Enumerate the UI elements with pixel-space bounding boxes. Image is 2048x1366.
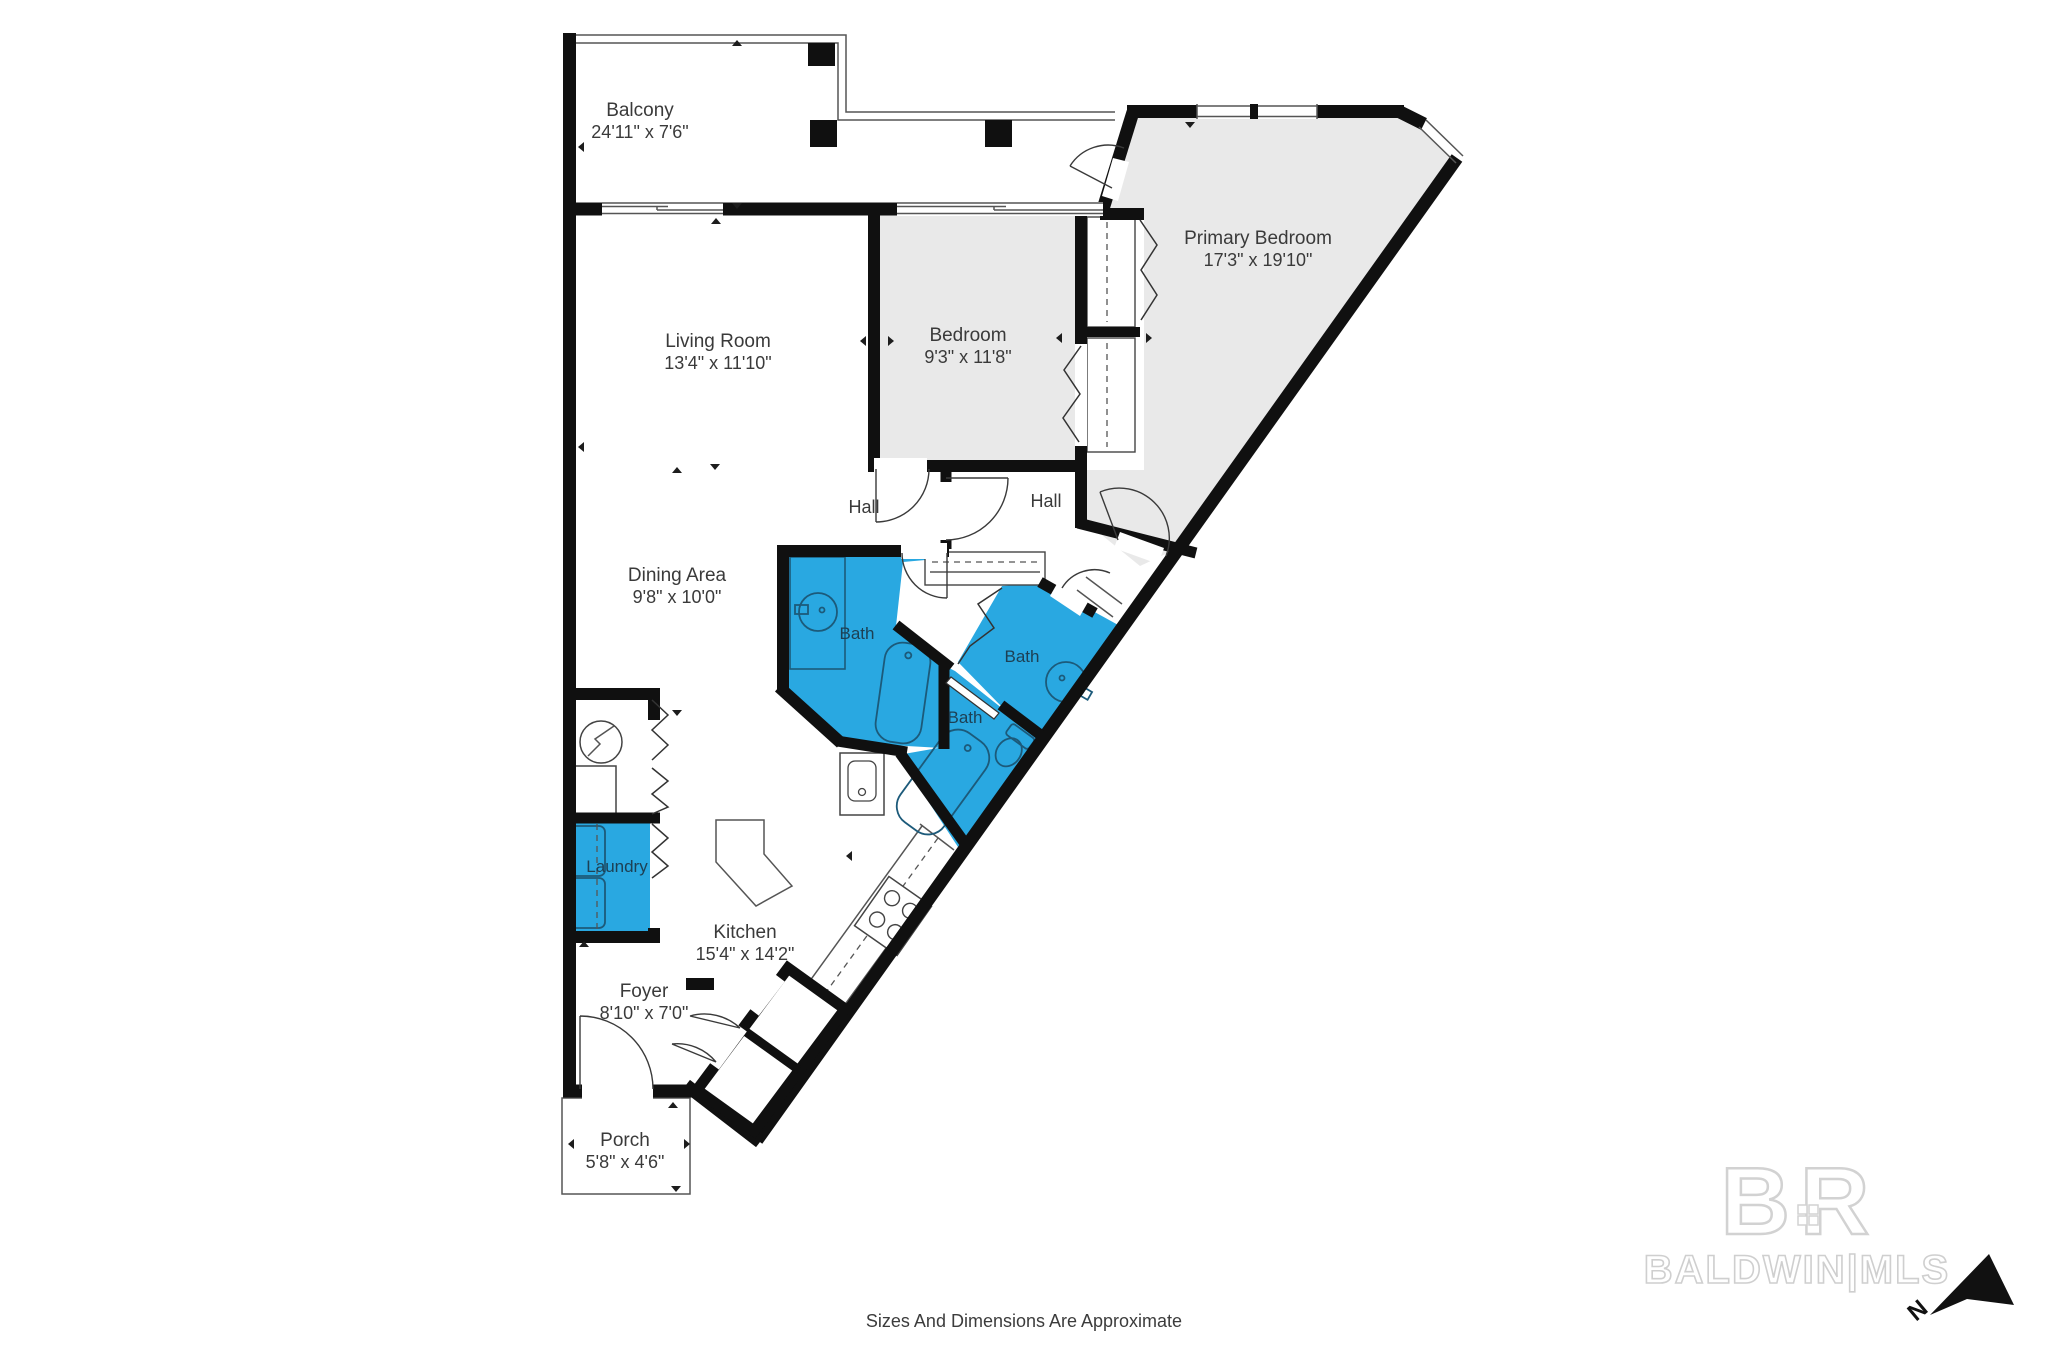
primary-bedroom-area [1087, 117, 1454, 566]
bedroom-label: Bedroom [929, 325, 1006, 346]
watermark-name: BALDWIN|MLS [1644, 1248, 1950, 1292]
living-room-dims: 13'4" x 11'10" [664, 353, 771, 373]
dining-area-dims: 9'8" x 10'0" [633, 587, 722, 607]
porch-dims: 5'8" x 4'6" [586, 1152, 665, 1172]
kitchen-sink-icon [840, 753, 884, 815]
balcony-dims: 24'11" x 7'6" [591, 122, 688, 142]
floor-plan-page: Balcony 24'11" x 7'6" Living Room 13'4" … [0, 0, 2048, 1366]
laundry-label: Laundry [586, 857, 648, 876]
kitchen-dims: 15'4" x 14'2" [696, 944, 795, 964]
primary-bedroom-dims: 17'3" x 19'10" [1204, 250, 1313, 270]
bath-hall-label: Bath [840, 624, 875, 643]
hall-left-label: Hall [848, 497, 879, 517]
disclaimer-text: Sizes And Dimensions Are Approximate [866, 1311, 1182, 1331]
living-room-label: Living Room [665, 331, 771, 352]
foyer-dims: 8'10" x 7'0" [600, 1003, 689, 1023]
water-heater-icon [580, 721, 622, 763]
balcony-label: Balcony [606, 100, 674, 121]
kitchen-island [716, 820, 792, 906]
bath-middle-label: Bath [948, 708, 983, 727]
bath-primary-label: Bath [1005, 647, 1040, 666]
floor-plan-drawing: Balcony 24'11" x 7'6" Living Room 13'4" … [0, 0, 2048, 1366]
porch-label: Porch [600, 1130, 650, 1151]
watermark-monogram: BR [1721, 1148, 1880, 1255]
hall-right-label: Hall [1030, 491, 1061, 511]
primary-bedroom-label: Primary Bedroom [1184, 228, 1332, 249]
utility-closet [574, 721, 622, 814]
bedroom-dims: 9'3" x 11'8" [924, 347, 1011, 367]
foyer-label: Foyer [620, 981, 669, 1002]
baldwin-mls-watermark: BR BALDWIN|MLS [1644, 1148, 1950, 1292]
north-label: N [1903, 1295, 1934, 1327]
kitchen-label: Kitchen [713, 922, 776, 943]
dining-area-label: Dining Area [628, 565, 727, 586]
